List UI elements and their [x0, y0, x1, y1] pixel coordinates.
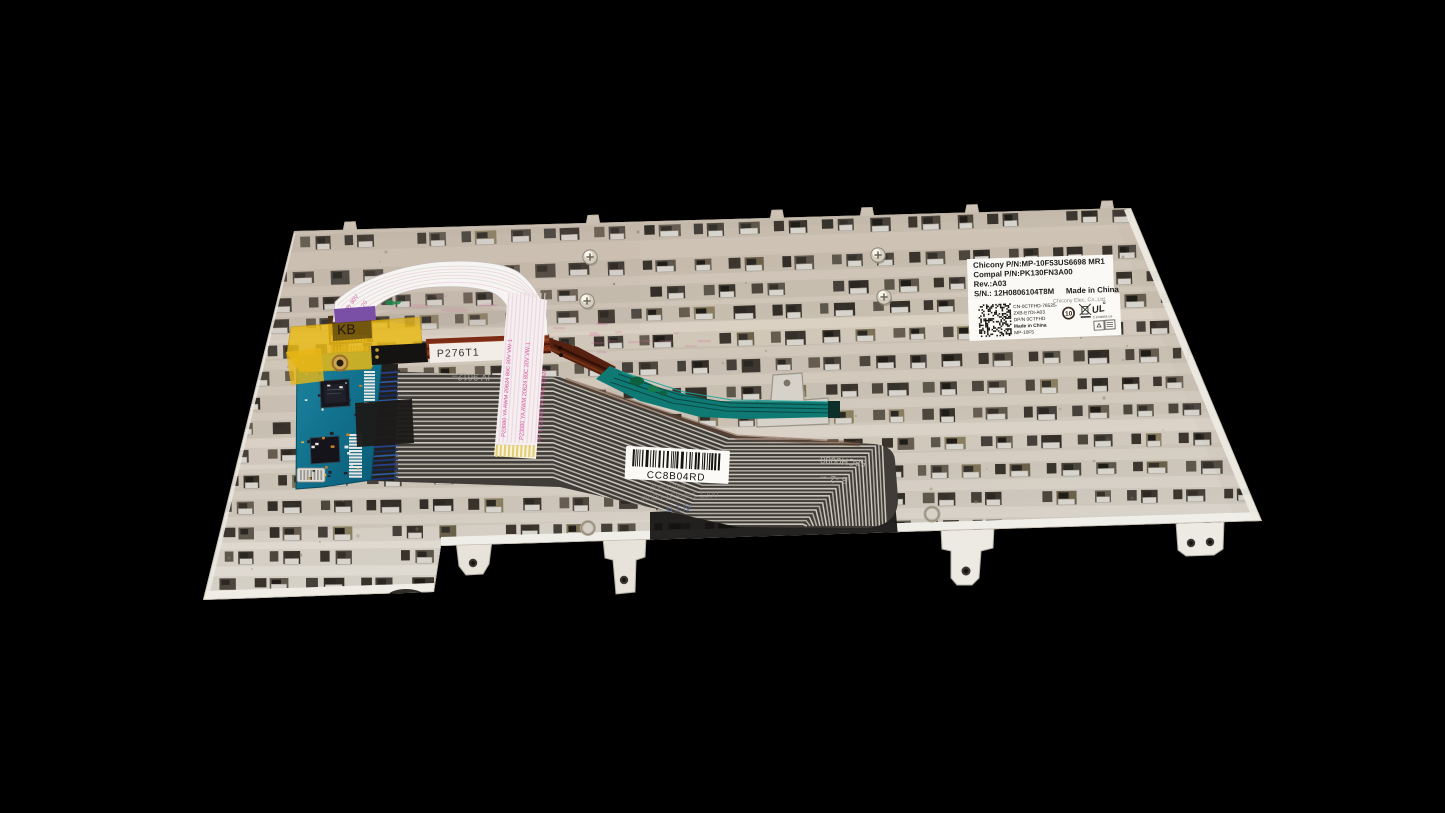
svg-text:MP-10F5: MP-10F5 [1014, 329, 1034, 336]
svg-text:IV 9612–: IV 9612– [451, 371, 490, 383]
svg-text:Made in China: Made in China [1014, 322, 1047, 329]
svg-text:⊔ 1 Ⅳ: ⊔ 1 Ⅳ [666, 503, 693, 514]
svg-text:Rev.:A03: Rev.:A03 [974, 279, 1008, 289]
svg-text:10: 10 [1065, 310, 1073, 317]
svg-text:DP/N 0CTFHD: DP/N 0CTFHD [1014, 316, 1046, 323]
svg-text:KB: KB [337, 321, 356, 338]
svg-text:B -2 ←: B -2 ← [818, 472, 848, 485]
svg-text:P276T1: P276T1 [437, 347, 480, 360]
svg-text:2XB-E7DI-A03: 2XB-E7DI-A03 [1013, 310, 1045, 317]
svg-text:C 1234956 US: C 1234956 US [1093, 314, 1113, 319]
